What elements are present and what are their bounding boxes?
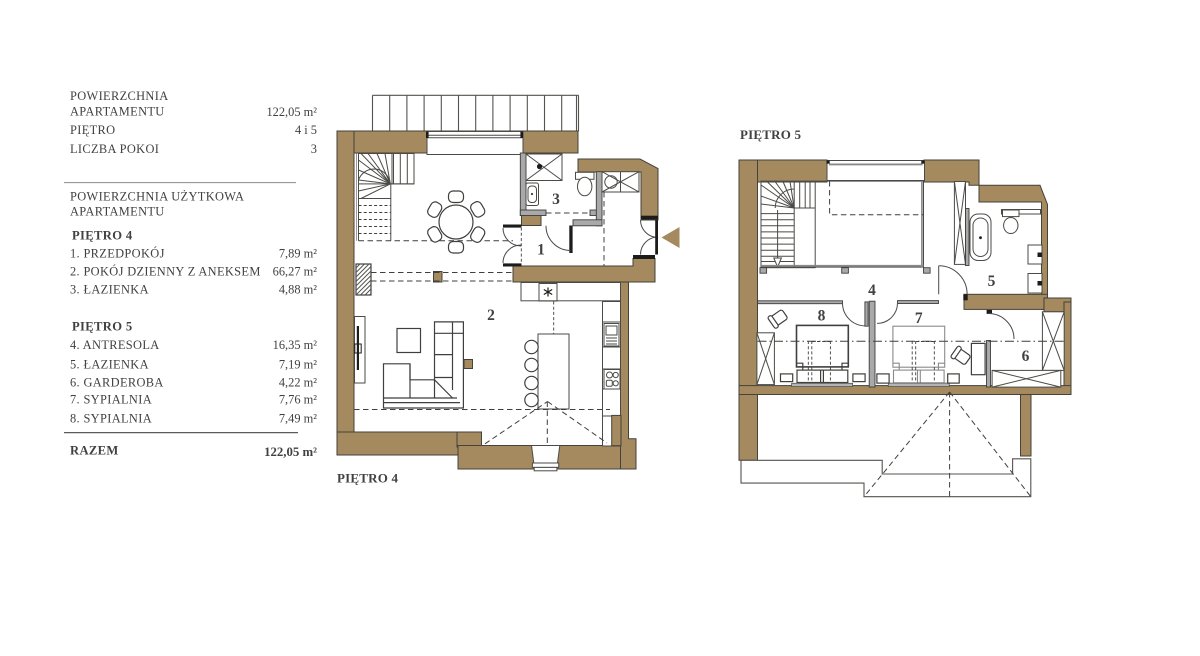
- svg-text:7,76 m²: 7,76 m²: [279, 393, 317, 407]
- svg-text:4 i 5: 4 i 5: [295, 123, 317, 137]
- svg-text:7. SYPIALNIA: 7. SYPIALNIA: [70, 393, 152, 407]
- svg-text:APARTAMENTU: APARTAMENTU: [70, 205, 165, 219]
- svg-text:APARTAMENTU: APARTAMENTU: [70, 105, 165, 119]
- svg-text:122,05 m²: 122,05 m²: [264, 445, 317, 459]
- svg-text:1. PRZEDPOKÓJ: 1. PRZEDPOKÓJ: [70, 247, 165, 261]
- svg-text:4,88 m²: 4,88 m²: [279, 283, 317, 297]
- svg-text:PIĘTRO 4: PIĘTRO 4: [337, 471, 398, 486]
- svg-text:1: 1: [537, 242, 545, 259]
- svg-text:3: 3: [552, 191, 560, 208]
- svg-text:4,22 m²: 4,22 m²: [279, 375, 317, 389]
- svg-text:2: 2: [487, 307, 495, 324]
- svg-text:POWIERZCHNIA: POWIERZCHNIA: [70, 89, 169, 103]
- svg-text:7: 7: [915, 310, 923, 327]
- svg-text:PIĘTRO: PIĘTRO: [70, 123, 115, 137]
- svg-text:4. ANTRESOLA: 4. ANTRESOLA: [70, 338, 160, 352]
- svg-text:66,27 m²: 66,27 m²: [273, 265, 318, 279]
- svg-text:PIĘTRO 5: PIĘTRO 5: [740, 127, 801, 142]
- svg-text:6: 6: [1022, 348, 1030, 365]
- svg-text:5: 5: [988, 273, 996, 290]
- svg-text:7,89 m²: 7,89 m²: [279, 247, 317, 261]
- svg-text:8: 8: [818, 308, 826, 325]
- svg-text:3. ŁAZIENKA: 3. ŁAZIENKA: [70, 283, 149, 297]
- svg-text:8. SYPIALNIA: 8. SYPIALNIA: [70, 412, 152, 426]
- svg-text:5. ŁAZIENKA: 5. ŁAZIENKA: [70, 357, 149, 371]
- svg-text:POWIERZCHNIA UŻYTKOWA: POWIERZCHNIA UŻYTKOWA: [70, 190, 244, 204]
- svg-text:RAZEM: RAZEM: [70, 443, 119, 457]
- svg-text:6. GARDEROBA: 6. GARDEROBA: [70, 375, 164, 389]
- svg-text:7,19 m²: 7,19 m²: [279, 357, 317, 371]
- svg-text:2. POKÓJ DZIENNY Z ANEKSEM: 2. POKÓJ DZIENNY Z ANEKSEM: [70, 265, 261, 279]
- svg-text:PIĘTRO 5: PIĘTRO 5: [72, 320, 133, 334]
- svg-text:16,35 m²: 16,35 m²: [273, 338, 318, 352]
- svg-text:7,49 m²: 7,49 m²: [279, 412, 317, 426]
- svg-text:3: 3: [311, 142, 317, 156]
- svg-text:LICZBA POKOI: LICZBA POKOI: [70, 142, 159, 156]
- svg-text:122,05 m²: 122,05 m²: [266, 105, 317, 119]
- svg-text:PIĘTRO 4: PIĘTRO 4: [72, 229, 133, 243]
- svg-text:4: 4: [868, 282, 876, 299]
